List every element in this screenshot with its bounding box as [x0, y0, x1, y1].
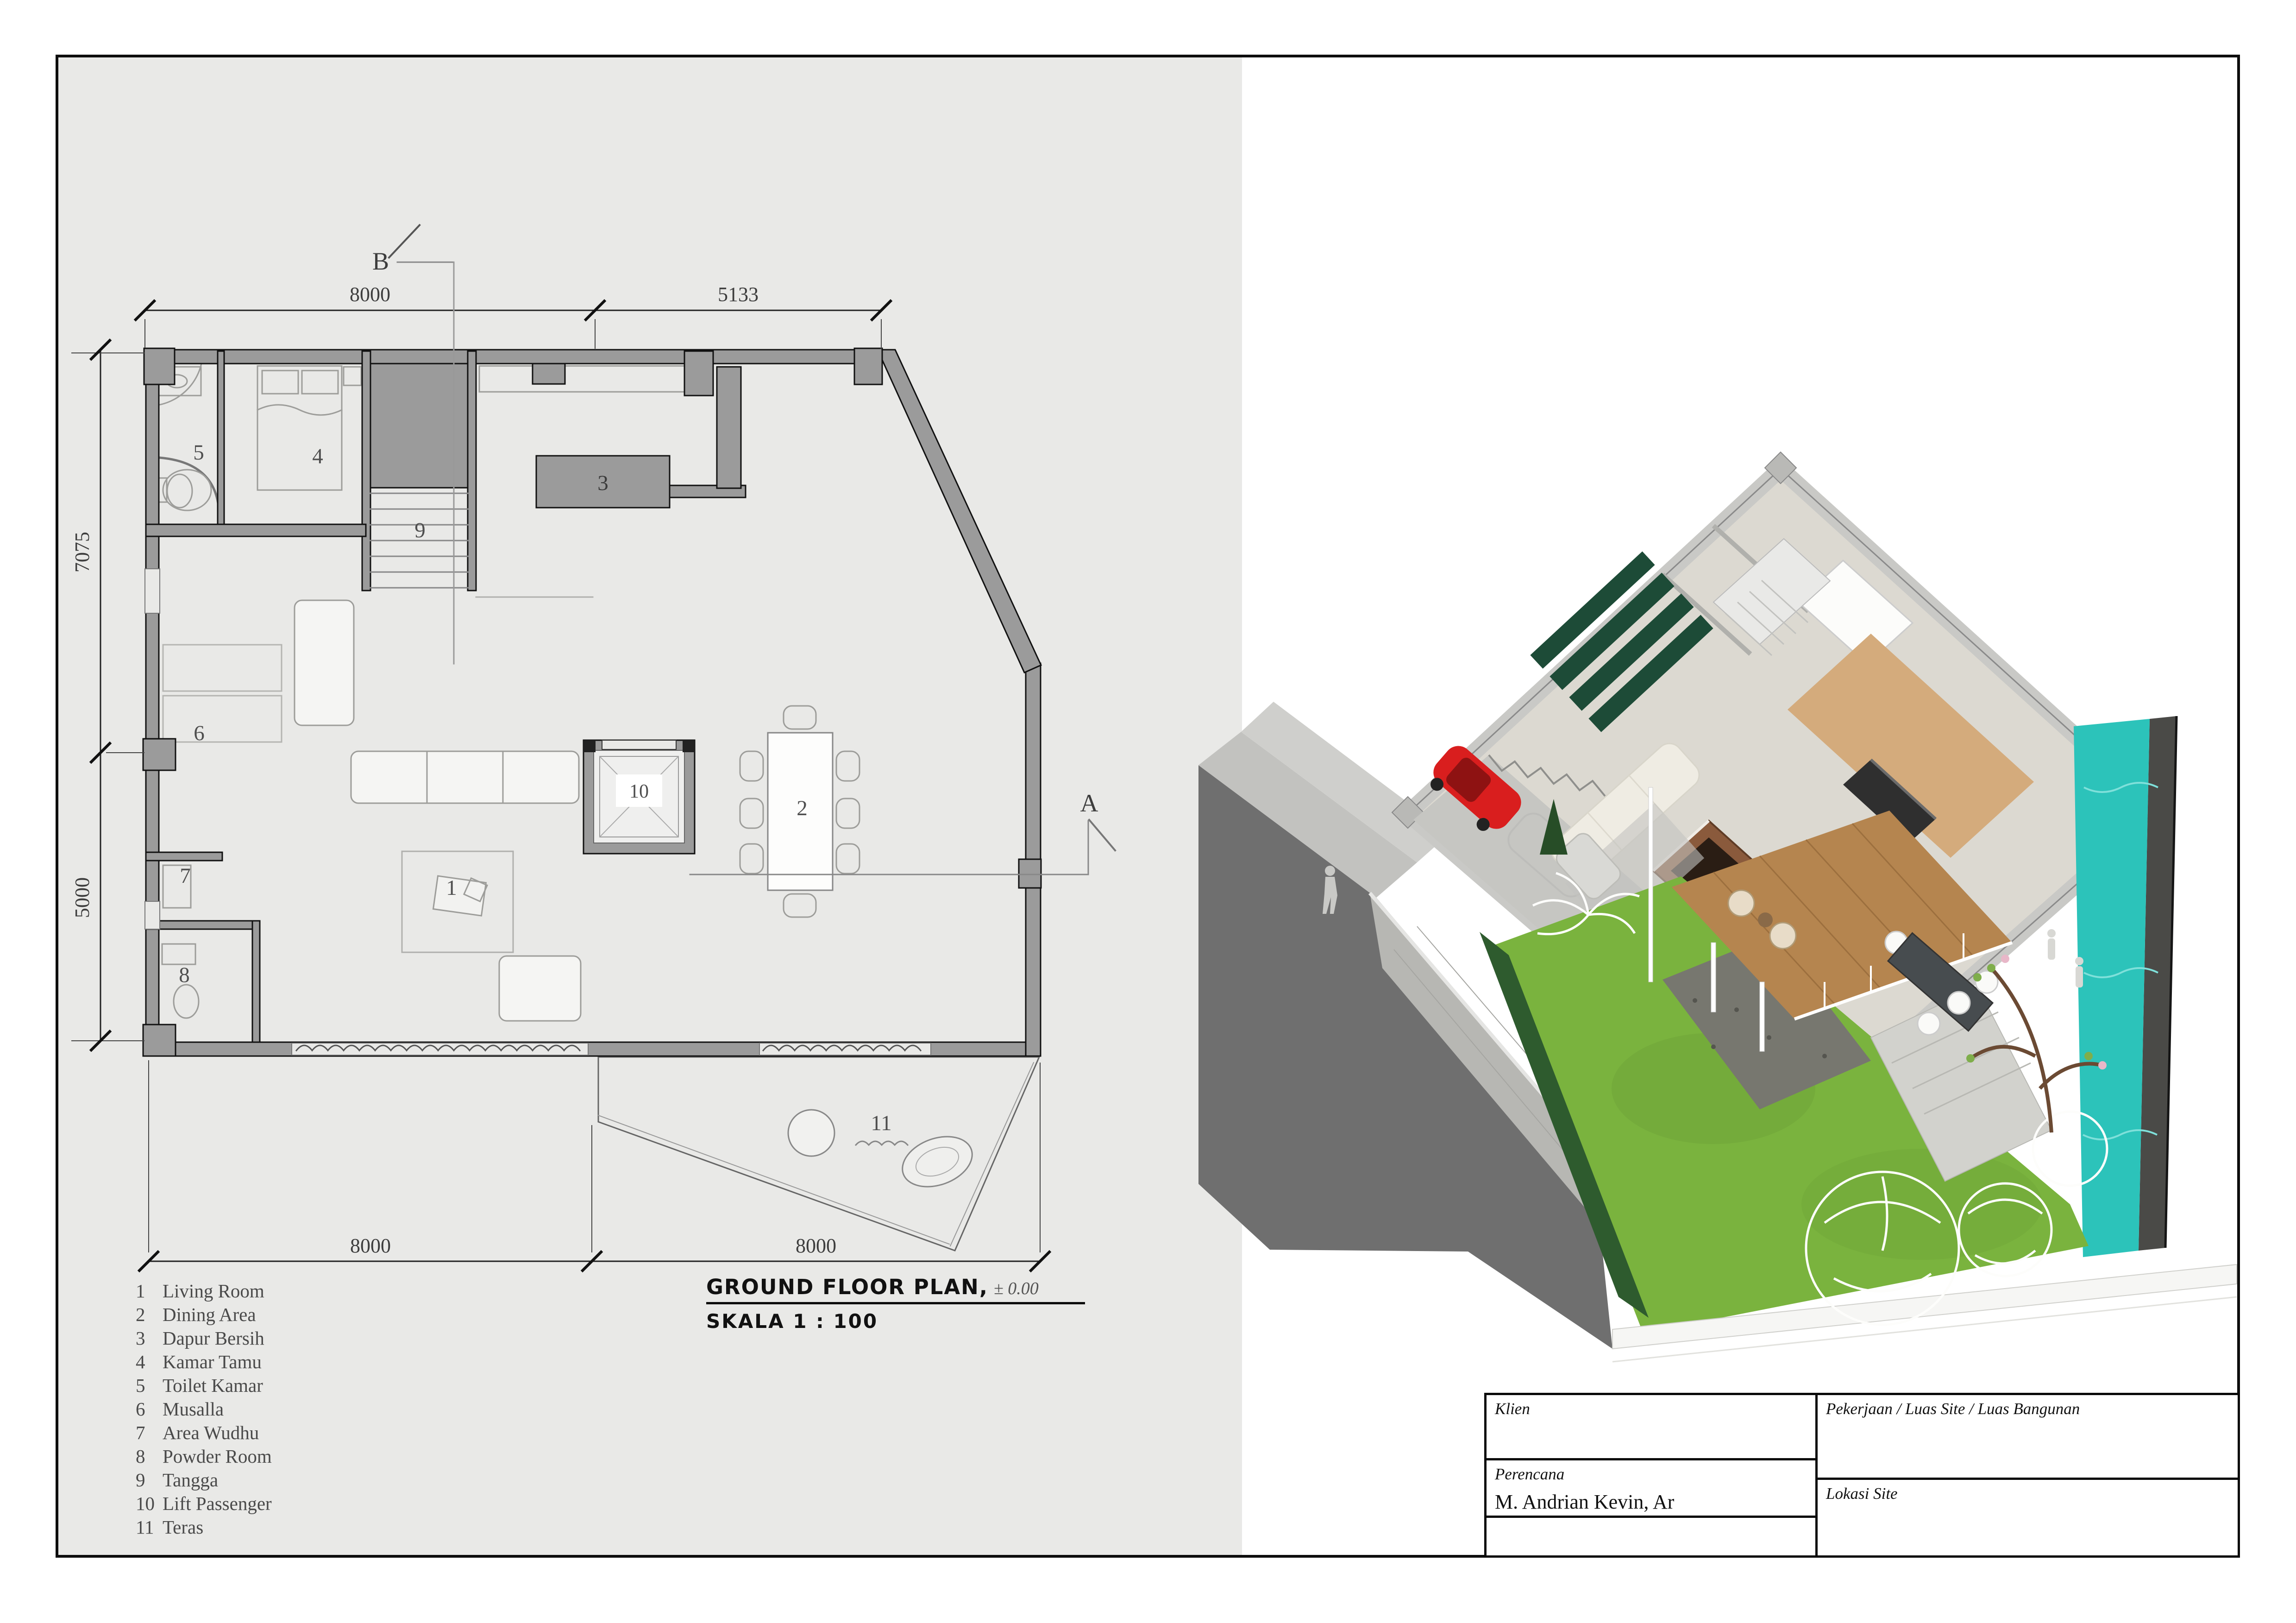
legend-no: 4 [136, 1350, 163, 1374]
legend-label: Tangga [163, 1468, 218, 1492]
title-block-pekerjaan: Pekerjaan / Luas Site / Luas Bangunan [1818, 1395, 2240, 1480]
legend-row: 7Area Wudhu [136, 1421, 272, 1445]
klien-label: Klien [1495, 1400, 1807, 1418]
room-legend: 1Living Room 2Dining Area 3Dapur Bersih … [136, 1279, 272, 1539]
legend-no: 7 [136, 1421, 163, 1445]
plan-title-scale: SKALA 1 : 100 [706, 1310, 878, 1333]
legend-row: 5Toilet Kamar [136, 1374, 272, 1397]
perencana-label: Perencana [1495, 1465, 1807, 1484]
legend-row: 4Kamar Tamu [136, 1350, 272, 1374]
pekerjaan-label: Pekerjaan / Luas Site / Luas Bangunan [1826, 1400, 2232, 1418]
legend-label: Teras [163, 1516, 203, 1539]
title-underline [706, 1302, 1085, 1304]
legend-no: 1 [136, 1279, 163, 1303]
legend-row: 3Dapur Bersih [136, 1327, 272, 1350]
legend-no: 9 [136, 1468, 163, 1492]
legend-row: 9Tangga [136, 1468, 272, 1492]
legend-label: Musalla [163, 1397, 224, 1421]
legend-label: Dining Area [163, 1303, 256, 1327]
plan-title-main: GROUND FLOOR PLAN, [706, 1275, 988, 1299]
legend-label: Lift Passenger [163, 1492, 272, 1516]
legend-no: 8 [136, 1445, 163, 1468]
legend-row: 8Powder Room [136, 1445, 272, 1468]
legend-no: 10 [136, 1492, 163, 1516]
legend-label: Area Wudhu [163, 1421, 259, 1445]
title-block-lokasi: Lokasi Site [1818, 1480, 2240, 1555]
legend-row: 6Musalla [136, 1397, 272, 1421]
legend-row: 10Lift Passenger [136, 1492, 272, 1516]
legend-no: 2 [136, 1303, 163, 1327]
title-block-klien: Klien [1487, 1395, 1818, 1460]
perencana-name: M. Andrian Kevin, Ar [1495, 1490, 1807, 1514]
title-block-perencana: Perencana M. Andrian Kevin, Ar [1487, 1460, 1818, 1518]
plan-title-elevation: ± 0.00 [994, 1278, 1039, 1299]
legend-row: 1Living Room [136, 1279, 272, 1303]
legend-no: 3 [136, 1327, 163, 1350]
legend-row: 11Teras [136, 1516, 272, 1539]
title-block-left-extra [1487, 1518, 1818, 1555]
legend-label: Living Room [163, 1279, 264, 1303]
lokasi-label: Lokasi Site [1826, 1485, 2232, 1503]
sheet-border-frame [56, 55, 2240, 1558]
legend-label: Toilet Kamar [163, 1374, 263, 1397]
legend-label: Powder Room [163, 1445, 272, 1468]
legend-row: 2Dining Area [136, 1303, 272, 1327]
legend-label: Dapur Bersih [163, 1327, 264, 1350]
legend-no: 5 [136, 1374, 163, 1397]
title-block: Klien Perencana M. Andrian Kevin, Ar Pek… [1484, 1393, 2240, 1558]
legend-no: 6 [136, 1397, 163, 1421]
legend-label: Kamar Tamu [163, 1350, 262, 1374]
plan-title: GROUND FLOOR PLAN, ± 0.00 SKALA 1 : 100 [706, 1275, 1123, 1333]
legend-no: 11 [136, 1516, 163, 1539]
